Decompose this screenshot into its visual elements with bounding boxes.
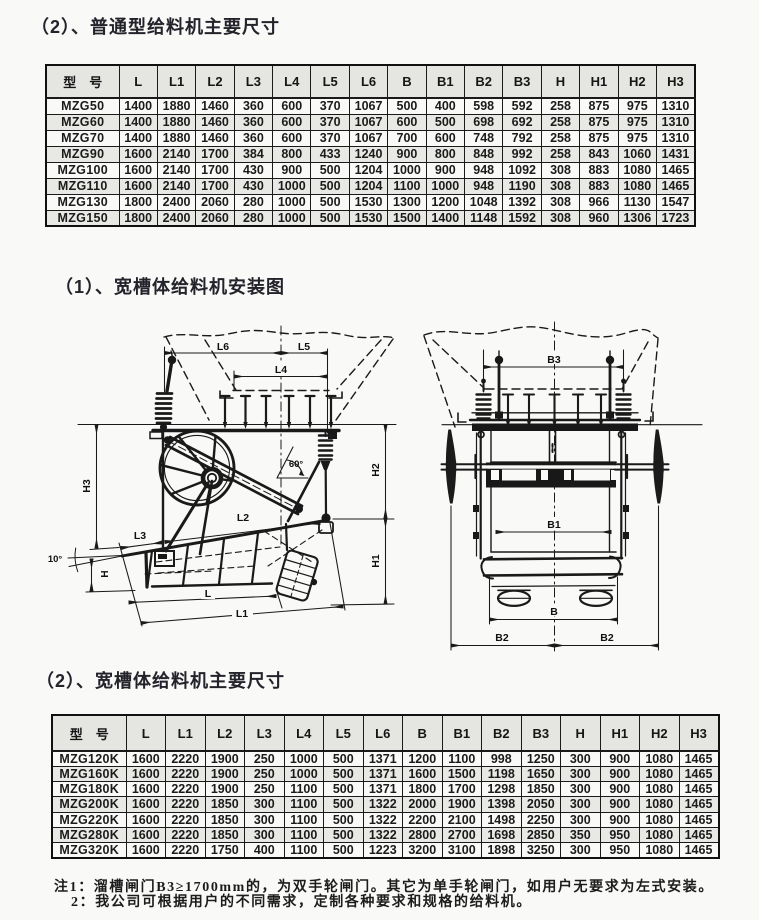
svg-text:H: H (100, 570, 111, 577)
svg-text:B2: B2 (600, 632, 614, 644)
svg-text:H1: H1 (370, 554, 382, 568)
svg-text:10°: 10° (48, 554, 63, 565)
svg-text:B2: B2 (495, 632, 509, 644)
svg-text:L5: L5 (298, 341, 310, 353)
svg-text:L6: L6 (217, 341, 229, 353)
svg-text:L1: L1 (236, 608, 248, 620)
svg-text:L: L (205, 588, 212, 600)
svg-text:B1: B1 (547, 519, 561, 531)
svg-text:H2: H2 (370, 463, 382, 477)
svg-text:B: B (550, 606, 558, 618)
svg-text:60°: 60° (289, 459, 304, 470)
svg-text:H3: H3 (81, 479, 93, 493)
svg-text:B3: B3 (547, 354, 561, 366)
svg-text:L4: L4 (275, 364, 287, 376)
svg-text:L2: L2 (237, 512, 249, 524)
svg-text:L3: L3 (134, 530, 146, 542)
